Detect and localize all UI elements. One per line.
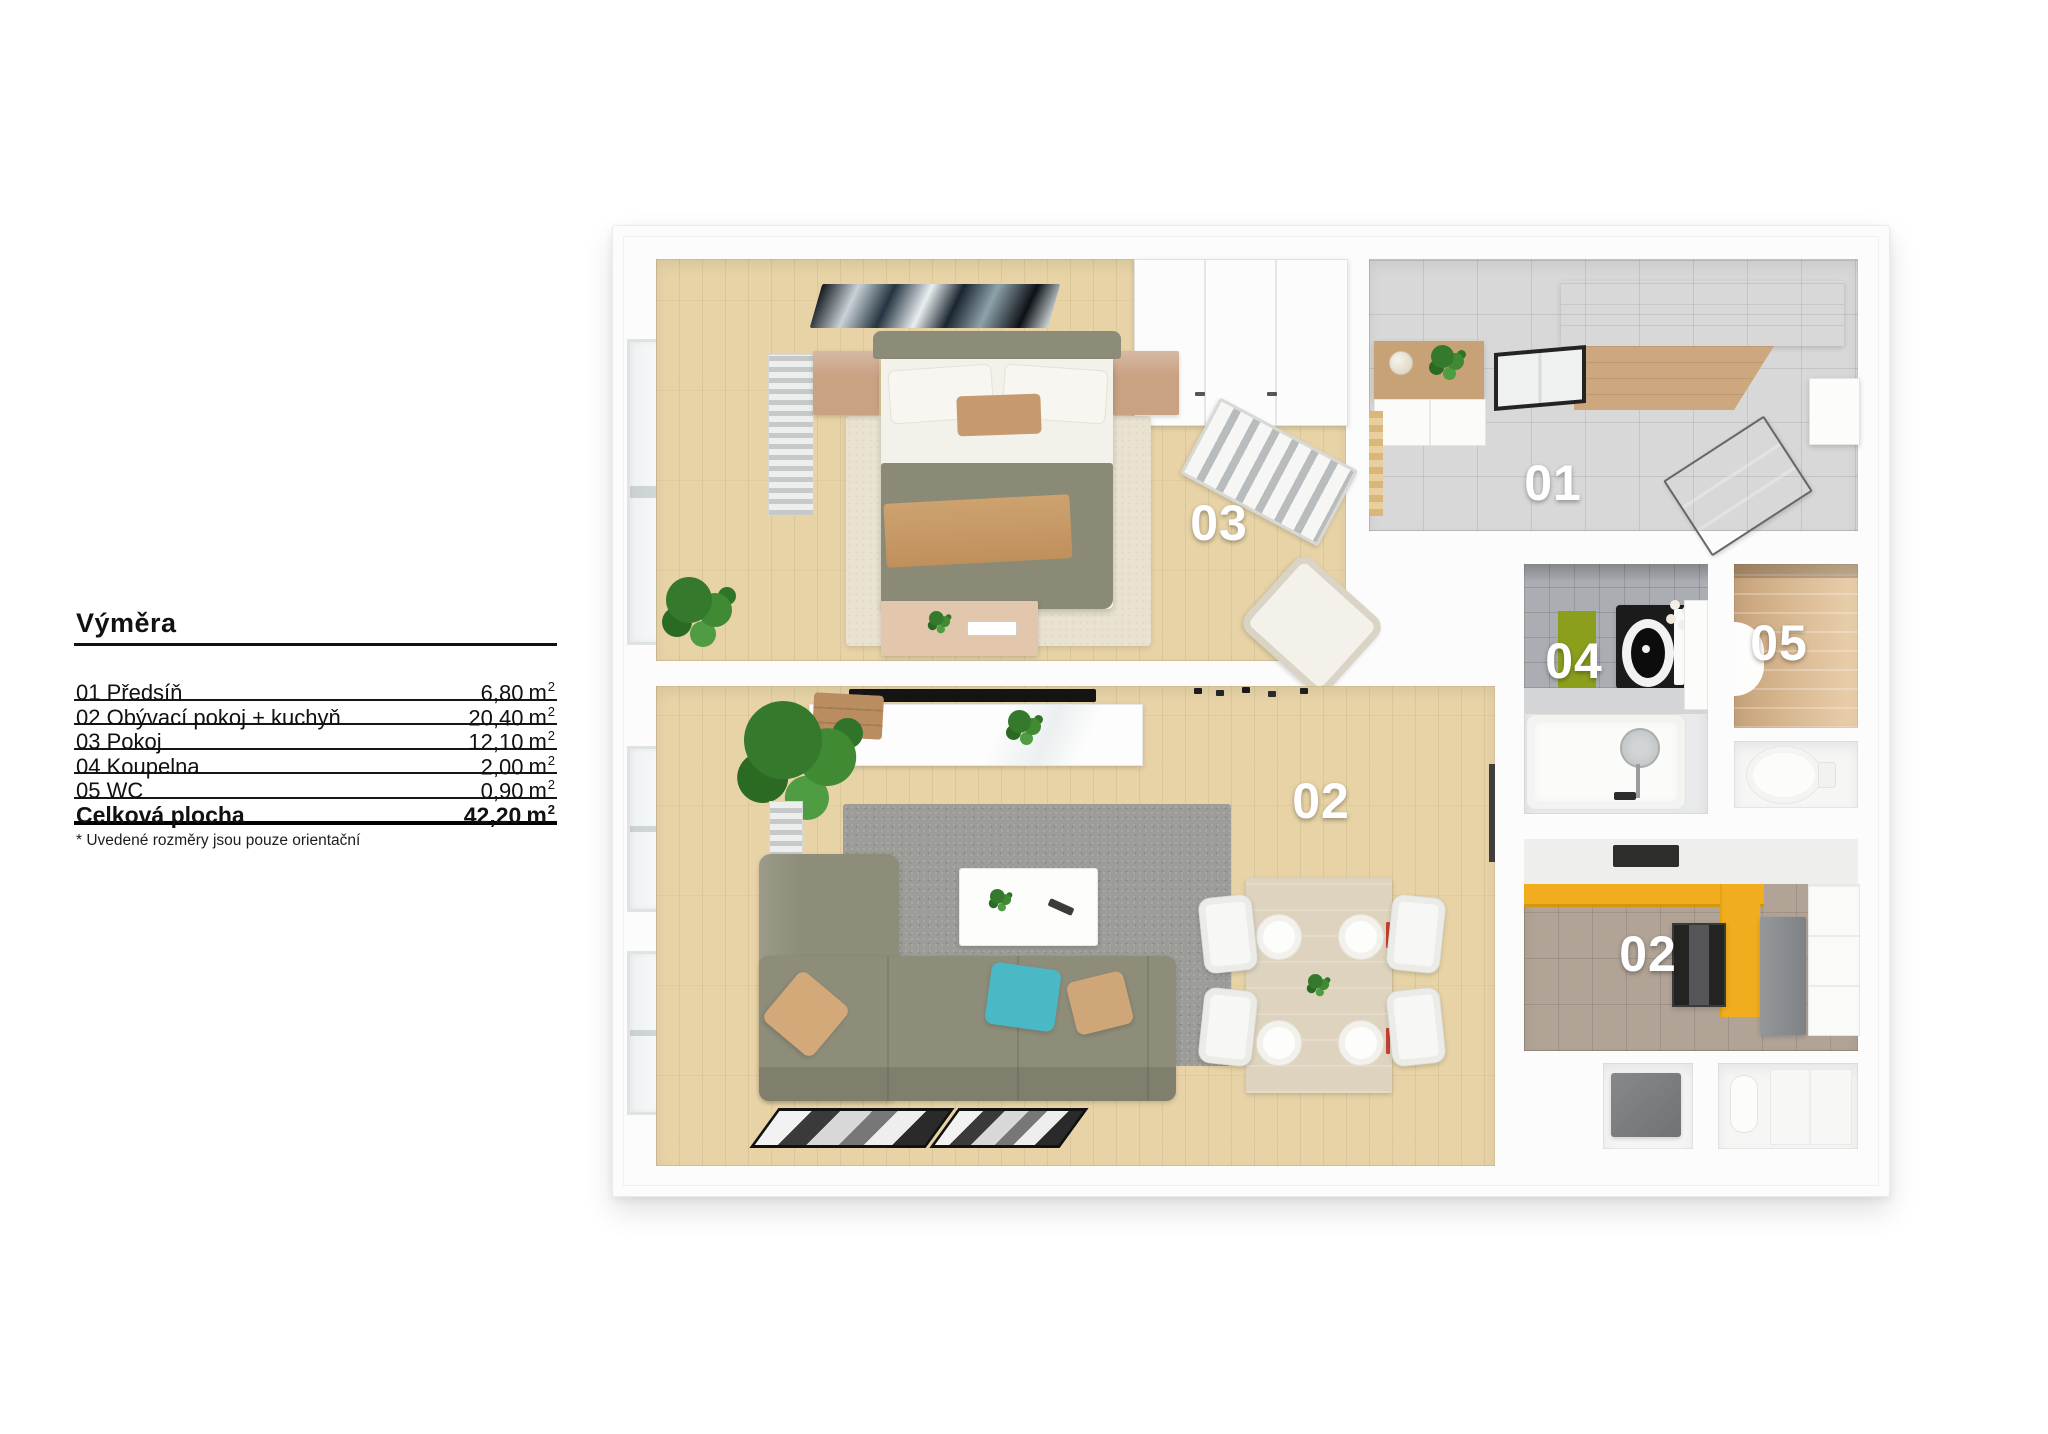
dining-chair	[1385, 986, 1447, 1067]
desk-plant	[929, 611, 944, 626]
legend-rows: 01 Předsíň 6,80m2 02 Obývací pokoj + kuc…	[74, 676, 557, 825]
table-plant	[990, 889, 1005, 904]
dining-chair	[1385, 893, 1447, 974]
legend-row-hall: 01 Předsíň 6,80m2	[74, 676, 557, 701]
room-hall	[1369, 259, 1858, 531]
plate	[1338, 914, 1384, 960]
decor-flowers	[1670, 600, 1680, 610]
shower-pole	[1636, 764, 1640, 798]
bed-throw-blanket	[883, 494, 1072, 568]
sideboard-plant	[1008, 710, 1031, 733]
kitchen-lower-left	[1603, 1063, 1693, 1149]
legend-total-name: Celková plocha	[76, 805, 245, 826]
legend-room-name: 04 Koupelna	[76, 756, 200, 777]
legend-room-area: 12,10m2	[468, 726, 555, 752]
built-in-oven	[1672, 923, 1726, 1007]
door-opening	[1489, 764, 1495, 862]
dining-table	[1246, 878, 1392, 1093]
room-label-wc: 05	[1750, 614, 1808, 672]
hall-wardrobe-front	[1574, 346, 1774, 410]
legend: Výměra 01 Předsíň 6,80m2 02 Obývací poko…	[74, 608, 557, 850]
dining-chair	[1197, 986, 1259, 1067]
bedroom-desk	[881, 601, 1038, 656]
plate	[1256, 914, 1302, 960]
hall-radiator	[1369, 411, 1383, 516]
page: Výměra 01 Předsíň 6,80m2 02 Obývací poko…	[0, 0, 2048, 1434]
washer-door-center	[1642, 645, 1650, 653]
legend-room-name: 01 Předsíň	[76, 682, 182, 703]
legend-total-area: 42,20m2	[464, 800, 555, 827]
shower-head	[1620, 728, 1660, 768]
cooktop	[1613, 845, 1679, 867]
legend-row-living: 02 Obývací pokoj + kuchyň 20,40m2	[74, 701, 557, 726]
wall-hooks	[1194, 688, 1202, 694]
room-label-bath: 04	[1545, 632, 1603, 690]
room-kitchen	[1524, 839, 1858, 1051]
room-wc-lower	[1734, 741, 1858, 808]
plate	[1256, 1020, 1302, 1066]
wall-picture-2	[929, 1108, 1088, 1148]
room-label-bedroom: 03	[1190, 494, 1248, 552]
fridge	[1760, 917, 1806, 1035]
plate	[1338, 1020, 1384, 1066]
bedroom-radiator	[768, 354, 814, 516]
toilet-top-view	[1746, 746, 1822, 804]
toilet-tank	[1818, 762, 1836, 788]
sofa-pillow-teal	[984, 961, 1062, 1032]
floor-plan: 01 02 02 03 04 05	[612, 225, 1890, 1197]
legend-row-total: Celková plocha 42,20m2	[74, 799, 557, 826]
bathtub	[1526, 714, 1686, 810]
kitchen-lower-right	[1718, 1063, 1858, 1149]
washing-machine	[1616, 605, 1688, 689]
room-living	[656, 686, 1495, 1166]
kitchen-gray-unit	[1611, 1073, 1681, 1137]
wall-art	[810, 284, 1061, 328]
legend-row-bath: 04 Koupelna 2,00m2	[74, 750, 557, 775]
legend-title: Výměra	[74, 608, 557, 646]
legend-room-area: 2,00m2	[481, 751, 555, 777]
legend-room-area: 6,80m2	[481, 677, 555, 703]
legend-room-name: 02 Obývací pokoj + kuchyň	[76, 707, 341, 728]
coffee-table	[959, 868, 1098, 946]
legend-room-area: 0,90m2	[481, 775, 555, 801]
decor-tray	[812, 692, 884, 740]
legend-room-name: 05 WC	[76, 780, 143, 801]
tv	[849, 689, 1096, 702]
entry-doormat	[1494, 345, 1586, 411]
shoe-cabinet	[1809, 378, 1860, 445]
room-label-living: 02	[1292, 772, 1350, 830]
bed-accent-pillow	[956, 394, 1041, 437]
kitchen-wall	[1524, 839, 1858, 884]
bed-headboard	[873, 331, 1121, 359]
legend-footnote: * Uvedené rozměry jsou pouze orientační	[76, 832, 557, 850]
decor-ball	[1389, 351, 1413, 375]
kitchen-cabinets	[1808, 884, 1860, 1036]
nightstand-left	[813, 351, 879, 415]
wardrobe-handle	[1267, 392, 1277, 396]
remote-control	[1047, 898, 1074, 916]
desk-card	[967, 621, 1017, 636]
wall-picture-1	[749, 1108, 954, 1148]
water-heater	[1730, 1075, 1758, 1133]
bath-faucet	[1614, 792, 1636, 800]
room-label-kitchen: 02	[1619, 925, 1677, 983]
nightstand-right	[1113, 351, 1179, 415]
bath-edge	[1524, 688, 1708, 714]
hall-sideboard-drawers	[1374, 399, 1486, 446]
table-centerpiece	[1308, 974, 1323, 989]
hall-plant	[1431, 345, 1454, 368]
legend-room-area: 20,40m2	[468, 702, 555, 728]
wardrobe-handle	[1195, 392, 1205, 396]
kitchen-base-cabinet	[1770, 1069, 1852, 1145]
double-bed	[881, 331, 1113, 609]
legend-room-name: 03 Pokoj	[76, 731, 162, 752]
kitchen-counter-right	[1720, 884, 1760, 1017]
bathroom-door	[1684, 600, 1708, 710]
wc-wall-shadow	[1734, 564, 1858, 578]
washer-open-door	[1674, 609, 1684, 685]
bedroom-plant	[666, 577, 712, 623]
dining-chair	[1197, 893, 1259, 974]
hall-wardrobe-top	[1561, 281, 1844, 346]
room-label-hall: 01	[1524, 454, 1582, 512]
living-plant	[744, 701, 822, 779]
room-bedroom	[656, 259, 1346, 661]
washer-door-ring	[1622, 619, 1674, 687]
